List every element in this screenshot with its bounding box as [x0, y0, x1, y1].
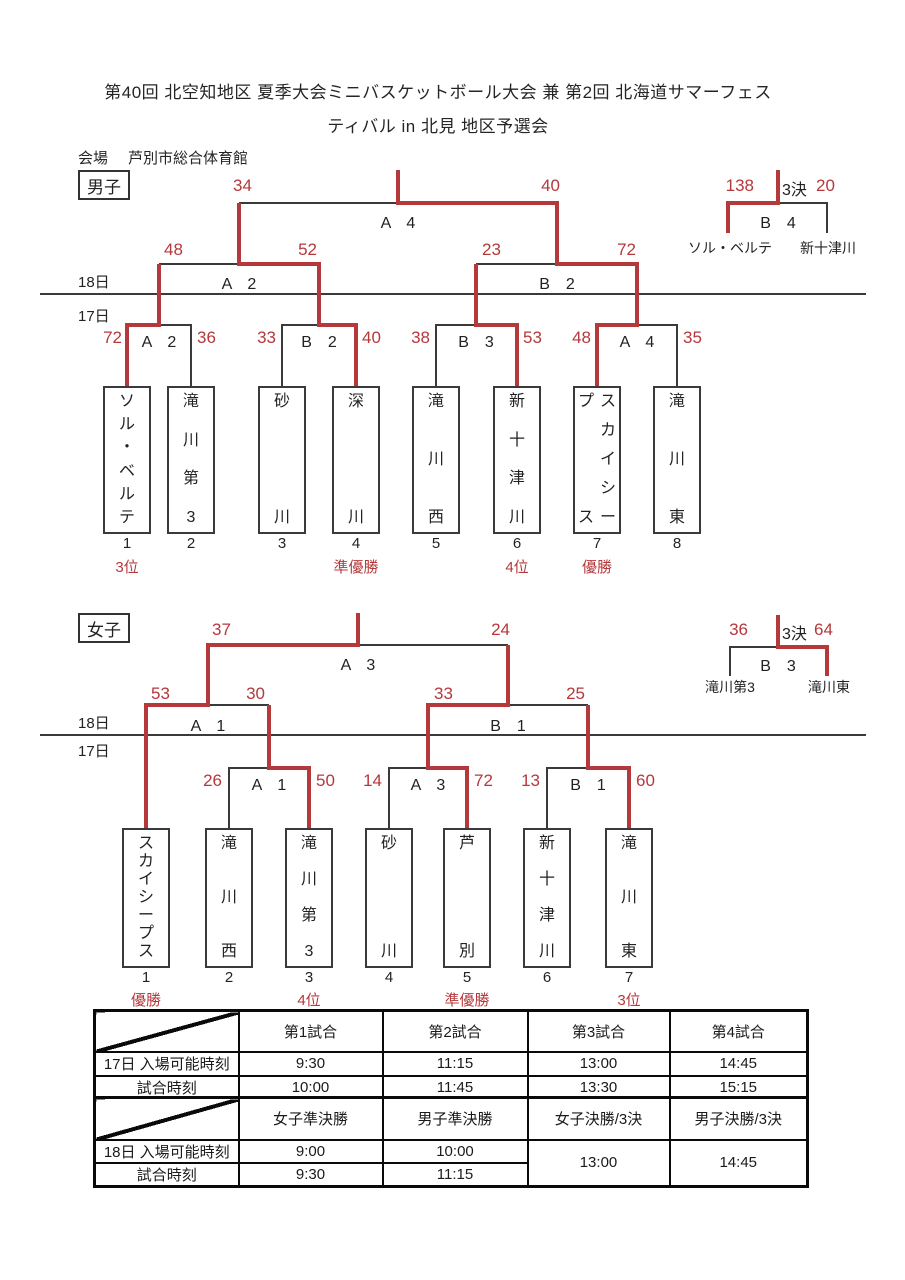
team-box-women-2: 滝川西 — [205, 828, 253, 968]
tournament-sheet: 第40回 北空知地区 夏季大会ミニバスケットボール大会 兼 第2回 北海道サマー… — [0, 0, 905, 1280]
women-final-score-left: 37 — [212, 620, 248, 640]
women-sf-right-score-right: 25 — [545, 684, 585, 704]
men-r1-3-score-right: 35 — [683, 328, 719, 348]
women-third-score-right: 64 — [814, 620, 844, 640]
men-third-team-left: ソル・ベルテ — [688, 238, 772, 258]
women-final-score-right: 24 — [474, 620, 510, 640]
team-name: 芦別 — [446, 836, 488, 960]
schedule-header-cell: 第2試合 — [383, 1011, 528, 1052]
men-sf-right-score-left: 23 — [482, 240, 522, 260]
women-third-team-left: 滝川第3 — [692, 677, 768, 697]
schedule-time-cell: 11:15 — [383, 1052, 528, 1076]
placement-women-runnerup: 準優勝 — [427, 989, 507, 1010]
team-name: ソル・ベルテ — [106, 394, 148, 526]
schedule-time-cell: 11:15 — [383, 1163, 528, 1187]
schedule-time-cell: 14:45 — [670, 1052, 808, 1076]
men-r1-0-score-left: 72 — [86, 328, 122, 348]
men-third-tag: 3決 — [782, 176, 807, 200]
women-sf-right-score-left: 33 — [434, 684, 474, 704]
women-r1-0-score-left: 26 — [186, 771, 222, 791]
schedule-time-cell: 10:00 — [383, 1140, 528, 1163]
women-sf-left-label: A 1 — [178, 712, 238, 736]
team-name: スカイシープス — [125, 836, 167, 960]
men-r1-1-score-left: 33 — [240, 328, 276, 348]
team-box-women-3: 滝川第3 — [285, 828, 333, 968]
schedule-time-cell-merged: 13:00 — [528, 1140, 670, 1187]
men-r1-2-label: B 3 — [448, 328, 504, 352]
team-box-women-1: スカイシープス — [122, 828, 170, 968]
team-seed: 6 — [493, 535, 541, 552]
page-title-line1: 第40回 北空知地区 夏季大会ミニバスケットボール大会 兼 第2回 北海道サマー… — [0, 78, 876, 103]
placement-women-champion: 優勝 — [116, 989, 176, 1010]
placement-men-4th: 4位 — [487, 556, 547, 577]
men-r1-3-score-left: 48 — [555, 328, 591, 348]
schedule-table-day18: 女子準決勝 男子準決勝 女子決勝/3決 男子決勝/3決 18日 入場可能時刻 9… — [93, 1096, 809, 1188]
venue-name: 芦別市総合体育館 — [128, 147, 248, 168]
schedule-table-day17: 第1試合 第2試合 第3試合 第4試合 17日 入場可能時刻 9:30 11:1… — [93, 1009, 809, 1101]
men-sf-left-label: A 2 — [209, 270, 269, 294]
women-third-team-right: 滝川東 — [799, 677, 859, 697]
women-r1-2-score-right: 60 — [636, 771, 672, 791]
women-r1-2-label: B 1 — [560, 771, 616, 795]
team-name: 深川 — [335, 394, 377, 526]
placement-women-3rd: 3位 — [599, 989, 659, 1010]
schedule-header-cell: 男子決勝/3決 — [670, 1098, 808, 1140]
team-seed: 6 — [523, 969, 571, 986]
women-third-score-left: 36 — [712, 620, 748, 640]
team-seed: 4 — [332, 535, 380, 552]
section-label-men: 男子 — [78, 170, 130, 200]
diagonal-cell — [95, 1098, 239, 1140]
placement-men-runnerup: 準優勝 — [316, 556, 396, 577]
team-box-men-3: 砂川 — [258, 386, 306, 534]
venue-label: 会場 — [78, 147, 108, 168]
women-r1-0-label: A 1 — [241, 771, 297, 795]
team-box-men-2: 滝川第3 — [167, 386, 215, 534]
men-r1-1-score-right: 40 — [362, 328, 398, 348]
team-box-men-1: ソル・ベルテ — [103, 386, 151, 534]
schedule-row-label: 試合時刻 — [95, 1163, 239, 1187]
team-name-col2: プス — [576, 394, 596, 526]
team-name: 滝川第3 — [288, 836, 330, 960]
team-seed: 2 — [167, 535, 215, 552]
schedule-time-cell: 9:00 — [239, 1140, 383, 1163]
schedule-header-cell: 第4試合 — [670, 1011, 808, 1052]
men-r1-0-label: A 2 — [131, 328, 187, 352]
team-seed: 1 — [122, 969, 170, 986]
team-name: 砂川 — [261, 394, 303, 526]
team-seed: 3 — [258, 535, 306, 552]
team-name: 新十津川 — [496, 394, 538, 526]
team-seed: 5 — [443, 969, 491, 986]
schedule-time-cell-merged: 14:45 — [670, 1140, 808, 1187]
team-box-men-8: 滝川東 — [653, 386, 701, 534]
team-seed: 7 — [605, 969, 653, 986]
men-final-label: A 4 — [368, 209, 428, 233]
men-sf-right-label: B 2 — [527, 270, 587, 294]
men-sf-left-score-right: 52 — [277, 240, 317, 260]
team-name: 滝川第3 — [170, 394, 212, 526]
women-third-tag: 3決 — [782, 620, 807, 644]
women-date-18: 18日 — [78, 712, 110, 733]
women-third-label: B 3 — [748, 652, 808, 676]
team-seed: 2 — [205, 969, 253, 986]
men-third-score-left: 138 — [716, 176, 754, 196]
page-title-line2: ティバル in 北見 地区予選会 — [0, 112, 876, 137]
women-final-label: A 3 — [328, 651, 388, 675]
men-final-score-left: 34 — [233, 176, 273, 196]
section-label-women: 女子 — [78, 613, 130, 643]
team-box-women-7: 滝川東 — [605, 828, 653, 968]
men-third-team-right: 新十津川 — [794, 238, 862, 258]
team-box-women-6: 新十津川 — [523, 828, 571, 968]
team-name: 滝川西 — [208, 836, 250, 960]
women-sf-right-label: B 1 — [478, 712, 538, 736]
team-seed: 8 — [653, 535, 701, 552]
schedule-time-cell: 9:30 — [239, 1052, 383, 1076]
women-sf-left-score-right: 30 — [225, 684, 265, 704]
team-name: 新十津川 — [526, 836, 568, 960]
team-box-men-7: スカイシー プス — [573, 386, 621, 534]
men-r1-0-score-right: 36 — [197, 328, 233, 348]
schedule-time-cell: 9:30 — [239, 1163, 383, 1187]
men-r1-1-label: B 2 — [291, 328, 347, 352]
team-seed: 7 — [573, 535, 621, 552]
placement-men-3rd: 3位 — [97, 556, 157, 577]
schedule-header-cell: 女子準決勝 — [239, 1098, 383, 1140]
men-final-score-right: 40 — [524, 176, 560, 196]
schedule-time-cell: 13:00 — [528, 1052, 670, 1076]
team-box-men-5: 滝川西 — [412, 386, 460, 534]
team-seed: 3 — [285, 969, 333, 986]
women-r1-1-label: A 3 — [400, 771, 456, 795]
team-box-women-5: 芦別 — [443, 828, 491, 968]
women-r1-1-score-left: 14 — [346, 771, 382, 791]
women-sf-left-score-left: 53 — [151, 684, 191, 704]
schedule-row-label: 17日 入場可能時刻 — [95, 1052, 239, 1076]
schedule-header-cell: 第3試合 — [528, 1011, 670, 1052]
diagonal-cell — [95, 1011, 239, 1052]
team-box-men-4: 深川 — [332, 386, 380, 534]
women-date-17: 17日 — [78, 740, 110, 761]
men-date-17: 17日 — [78, 305, 110, 326]
men-sf-left-score-left: 48 — [164, 240, 204, 260]
placement-men-champion: 優勝 — [567, 556, 627, 577]
team-name-col1: スカイシー — [598, 394, 618, 526]
team-name: 滝川東 — [656, 394, 698, 526]
women-r1-2-score-left: 13 — [504, 771, 540, 791]
team-name: 砂川 — [368, 836, 410, 960]
team-name: 滝川西 — [415, 394, 457, 526]
schedule-header-cell: 女子決勝/3決 — [528, 1098, 670, 1140]
men-r1-2-score-left: 38 — [394, 328, 430, 348]
team-box-women-4: 砂川 — [365, 828, 413, 968]
men-date-18: 18日 — [78, 271, 110, 292]
placement-women-4th: 4位 — [279, 989, 339, 1010]
men-r1-3-label: A 4 — [609, 328, 665, 352]
men-r1-2-score-right: 53 — [523, 328, 559, 348]
men-third-score-right: 20 — [816, 176, 846, 196]
schedule-header-cell: 男子準決勝 — [383, 1098, 528, 1140]
schedule-header-cell: 第1試合 — [239, 1011, 383, 1052]
team-seed: 4 — [365, 969, 413, 986]
men-third-label: B 4 — [748, 209, 808, 233]
team-seed: 5 — [412, 535, 460, 552]
team-seed: 1 — [103, 535, 151, 552]
team-name: 滝川東 — [608, 836, 650, 960]
men-sf-right-score-right: 72 — [596, 240, 636, 260]
schedule-row-label: 18日 入場可能時刻 — [95, 1140, 239, 1163]
team-box-men-6: 新十津川 — [493, 386, 541, 534]
